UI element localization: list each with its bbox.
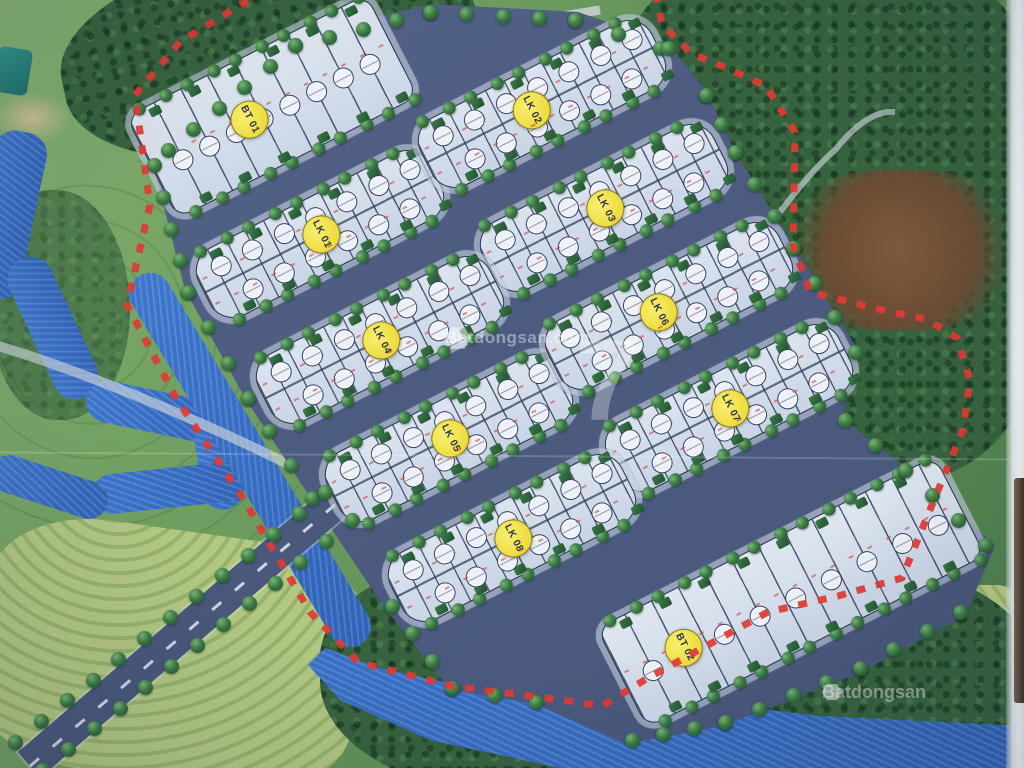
tree-icon <box>425 654 440 669</box>
tree-icon <box>190 638 205 653</box>
tree-icon <box>459 7 474 22</box>
tree-icon <box>215 568 230 583</box>
tree-icon <box>423 5 438 20</box>
tree-icon <box>262 424 277 439</box>
tree-icon <box>848 345 863 360</box>
tree-icon <box>786 241 801 256</box>
tree-icon <box>925 488 940 503</box>
tree-icon <box>747 177 762 192</box>
tree-icon <box>868 438 883 453</box>
tree-icon <box>237 80 252 95</box>
tree-icon <box>60 693 75 708</box>
roadside-trees <box>0 0 1024 768</box>
tree-icon <box>752 702 767 717</box>
tree-icon <box>827 310 842 325</box>
tree-icon <box>886 642 901 657</box>
tree-icon <box>284 458 299 473</box>
tree-icon <box>35 763 50 768</box>
tree-icon <box>767 209 782 224</box>
tree-icon <box>242 596 257 611</box>
tree-icon <box>161 143 176 158</box>
tree-icon <box>181 285 196 300</box>
tree-icon <box>405 626 420 641</box>
watermark-text: Batdongsan.com <box>445 328 590 348</box>
tree-icon <box>345 513 360 528</box>
tree-icon <box>61 742 76 757</box>
tree-icon <box>487 688 502 703</box>
tree-icon <box>111 652 126 667</box>
tree-icon <box>532 11 547 26</box>
tree-icon <box>266 527 281 542</box>
tree-icon <box>212 101 227 116</box>
tree-icon <box>147 158 162 173</box>
tree-icon <box>807 276 822 291</box>
tree-icon <box>164 659 179 674</box>
tree-icon <box>661 41 676 56</box>
tree-icon <box>718 715 733 730</box>
tree-icon <box>920 624 935 639</box>
tree-icon <box>385 599 400 614</box>
tree-icon <box>568 13 583 28</box>
tree-icon <box>164 222 179 237</box>
tree-icon <box>898 463 913 478</box>
tree-icon <box>389 13 404 28</box>
tree-icon <box>86 673 101 688</box>
tree-icon <box>173 253 188 268</box>
tree-icon <box>322 30 337 45</box>
tree-icon <box>241 391 256 406</box>
tree-icon <box>221 356 236 371</box>
tree-icon <box>163 610 178 625</box>
tree-icon <box>189 589 204 604</box>
site-plan-photo: BT 01LK 01LK 02LK 03LK 04LK 05LK 06LK 07… <box>0 0 1024 768</box>
tree-icon <box>156 190 171 205</box>
tree-icon <box>714 117 729 132</box>
tree-icon <box>268 576 283 591</box>
tree-icon <box>8 735 23 750</box>
tree-icon <box>625 733 640 748</box>
photo-background-sliver <box>1014 478 1024 703</box>
tree-icon <box>292 506 307 521</box>
tree-icon <box>496 9 511 24</box>
tree-icon <box>288 38 303 53</box>
tree-icon <box>728 145 743 160</box>
tree-icon <box>687 721 702 736</box>
tree-icon <box>293 555 308 570</box>
tree-icon <box>263 59 278 74</box>
tree-icon <box>853 661 868 676</box>
tree-icon <box>241 548 256 563</box>
tree-icon <box>951 513 966 528</box>
tree-icon <box>34 714 49 729</box>
tree-icon <box>529 695 544 710</box>
tree-icon <box>953 605 968 620</box>
tree-icon <box>138 680 153 695</box>
tree-icon <box>656 727 671 742</box>
tree-icon <box>216 617 231 632</box>
tree-icon <box>186 122 201 137</box>
tree-icon <box>113 701 128 716</box>
tree-icon <box>356 22 371 37</box>
watermark-big-digit: 7 <box>575 324 639 439</box>
tree-icon <box>978 538 993 553</box>
tree-icon <box>318 485 333 500</box>
tree-icon <box>838 413 853 428</box>
tree-icon <box>319 534 334 549</box>
tree-icon <box>201 320 216 335</box>
tree-icon <box>445 681 460 696</box>
tree-icon <box>786 688 801 703</box>
tree-icon <box>699 88 714 103</box>
tree-icon <box>137 631 152 646</box>
tree-icon <box>87 721 102 736</box>
tree-icon <box>611 27 626 42</box>
watermark-text: Batdongsan <box>822 682 926 703</box>
